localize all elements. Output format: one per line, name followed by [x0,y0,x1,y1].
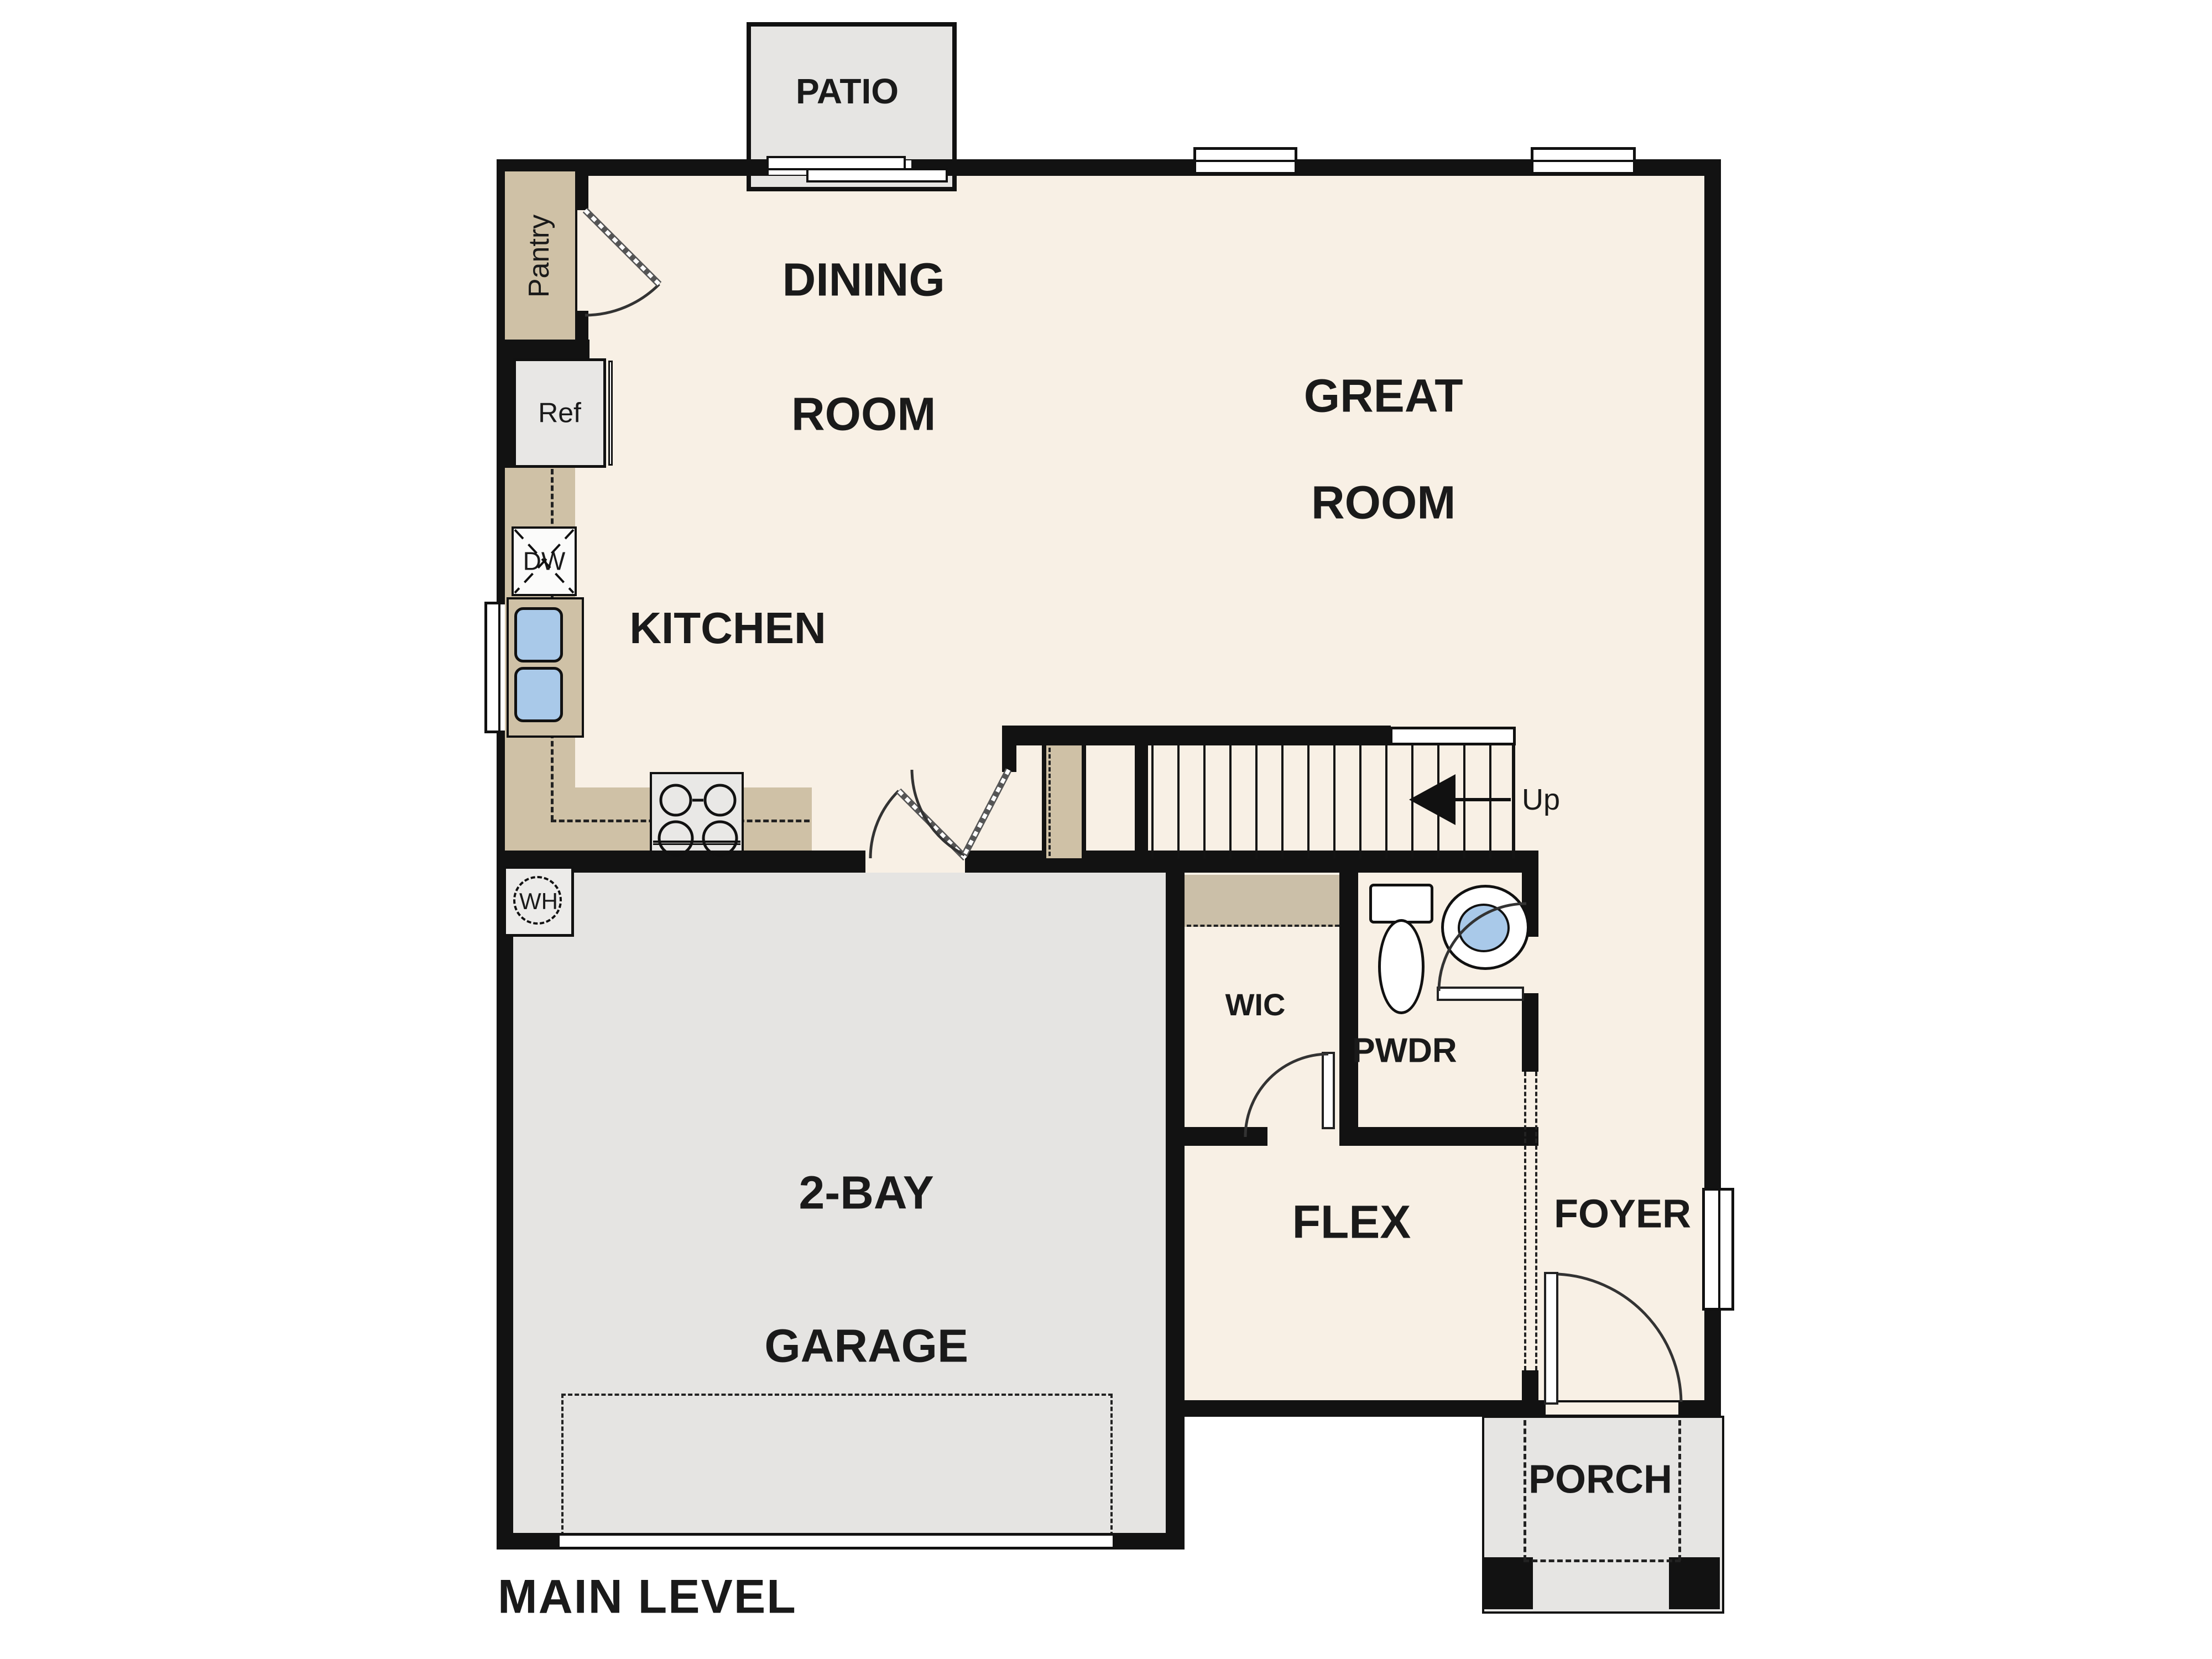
water-heater-label: WH [519,888,558,915]
toilet-bowl [1378,919,1425,1014]
kitchen-label: KITCHEN [629,603,826,654]
pwdr-label: PWDR [1352,1031,1457,1070]
landing-closet-wall [1082,745,1086,858]
wall-landing-stub [1002,745,1016,772]
wall-stair-top [1002,726,1391,745]
porch-roofline-dash [1524,1559,1681,1562]
toilet-tank [1369,884,1433,924]
landing-closet-wall [1042,745,1046,858]
staircase [1151,745,1514,858]
stairwell-left-wall [1135,745,1148,858]
pantry-label: Pantry [523,215,556,298]
pwdr-sink-basin [1458,904,1510,952]
great-line1: GREAT [1304,369,1463,421]
porch-post-left [1482,1557,1533,1609]
great-line2: ROOM [1311,476,1455,528]
front-door-threshold [1546,1402,1678,1415]
wic-door-leaf [1322,1052,1335,1129]
patio-label: PATIO [796,71,899,112]
window-great-room-2 [1531,147,1636,175]
stove-front-edge [653,841,740,845]
landing-closet-dash [1048,748,1051,856]
wic-shelf-dash [1187,925,1339,927]
refrigerator-label: Ref [538,397,581,429]
wall-flex-foyer-stub [1522,1370,1538,1401]
wall-pwdr-bottom [1358,1127,1538,1146]
flex-foyer-opening-dash [1524,1072,1526,1370]
front-door-leaf [1544,1272,1558,1405]
stair-railing [1390,727,1516,745]
stairs-up-label: Up [1522,782,1560,817]
pantry-door-jamb [575,159,588,210]
wall-wic-bottom [1185,1127,1267,1146]
refrigerator-door-line [608,361,613,466]
dishwasher-label: DW [521,547,568,576]
flex-label: FLEX [1292,1196,1411,1249]
dining-room-label: DINING ROOM [731,179,945,516]
staircase-right-edge [1512,745,1515,858]
garage-line1: 2-BAY [799,1166,934,1218]
landing-closet [1046,745,1082,858]
porch-roofline-dash [1678,1420,1681,1561]
garage-door [560,1533,1113,1550]
pantry-bottom-wall [497,340,589,359]
wic-label: WIC [1225,987,1286,1022]
sink-basin [514,607,563,662]
window-foyer [1702,1188,1734,1311]
window-great-room-1 [1193,147,1297,175]
pantry-door-jamb [575,311,588,342]
floor-plan: PATIO PORCH Pantry Ref DW KITCHEN [0,0,2212,1659]
page-title: MAIN LEVEL [498,1570,797,1625]
dining-line1: DINING [782,253,945,305]
foyer-label: FOYER [1554,1192,1691,1238]
garage-line2: GARAGE [764,1319,968,1371]
great-room-label: GREAT ROOM [1252,316,1463,583]
wall-pwdr-right [1522,993,1538,1072]
sink-basin [514,667,563,722]
flex-foyer-opening-dash [1535,1072,1537,1370]
pwdr-door-leaf [1437,987,1524,1001]
garage-label: 2-BAY GARAGE [713,1078,968,1461]
porch-post-right [1669,1557,1720,1609]
dining-line2: ROOM [791,388,936,440]
wall-garage-right [1166,873,1185,1550]
wall-wic-pwdr [1339,873,1358,1146]
porch-label: PORCH [1528,1457,1672,1503]
wic-shelf [1185,875,1341,927]
porch-roofline-dash [1524,1420,1526,1561]
